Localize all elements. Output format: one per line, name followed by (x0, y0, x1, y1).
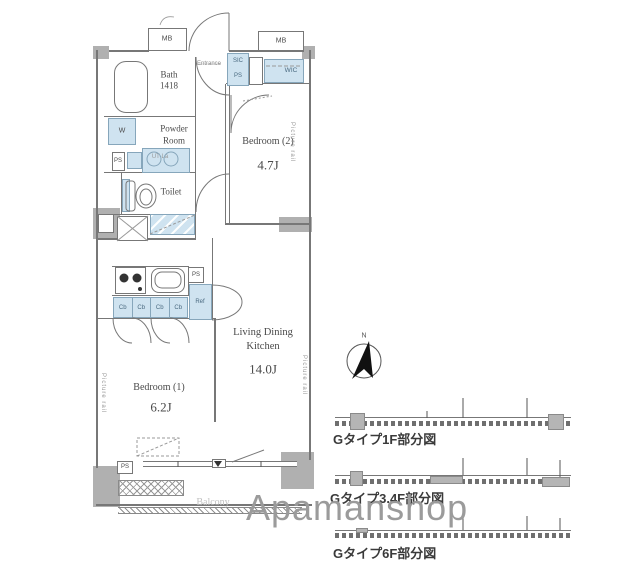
caption-type-1f: Gタイプ1F部分図 (333, 429, 436, 448)
shaft-box (98, 214, 114, 233)
strip-1f-band (335, 421, 571, 426)
north-compass-icon (347, 341, 381, 379)
wall-line (309, 50, 311, 460)
washer-label: W (119, 128, 126, 135)
bedroom1-area-label: 6.2J (150, 401, 171, 414)
strip-34f-block-mid (430, 476, 463, 484)
north-label: N (361, 333, 366, 340)
picture-rail-label: Picture rail (100, 373, 106, 413)
wic-label: WIC (285, 68, 298, 75)
wall-block (93, 466, 120, 507)
wall-line (225, 223, 310, 225)
closet-cell: Cb (151, 298, 170, 317)
closet-cell: Cb (133, 298, 152, 317)
toilet-bowl (136, 184, 156, 208)
powder-room-label: Powder (160, 125, 188, 134)
strip-1f-line (335, 417, 571, 418)
ldk-label2: Kitchen (246, 342, 279, 353)
strip-34f-block-right (542, 477, 570, 487)
strip-34f-block-left (350, 471, 363, 486)
wall-line (212, 238, 213, 266)
hall-storage (150, 214, 195, 235)
future-area-dashed-box (137, 438, 179, 456)
wall-line (104, 116, 195, 117)
window-bedroom1 (143, 461, 212, 467)
wall-line (112, 295, 189, 296)
strip-6f-line (335, 530, 571, 531)
bath-label: Bath (161, 71, 178, 80)
ps-label-sic: PS (234, 73, 242, 79)
meter-box-label: MB (162, 36, 173, 43)
caption-type-6f: Gタイプ6F部分図 (333, 543, 436, 562)
ldk-area-label: 14.0J (249, 363, 277, 376)
watermark: Apamanshop (246, 487, 468, 529)
balcony-hatch-area (118, 480, 184, 496)
bedroom2-label: Bedroom (2) (242, 137, 293, 147)
powder-room-label2: Room (163, 137, 185, 146)
ldk-label: Living Dining (233, 328, 293, 339)
closet-cell: Cb (170, 298, 188, 317)
wall-line (195, 57, 196, 238)
strip-1f-block-left (350, 413, 365, 430)
balcony-label: Balcony (196, 498, 229, 508)
picture-rail-label: Picture rail (301, 355, 307, 395)
wall-line (212, 266, 213, 320)
powder-note-label: UT-La (152, 154, 168, 160)
void-shaft (117, 216, 148, 241)
wall-line (109, 50, 149, 52)
strip-1f-block-right (548, 414, 564, 430)
sic-label: SIC (233, 58, 243, 64)
wall-line (214, 318, 216, 422)
kitchen-sink (151, 268, 185, 293)
bedroom2-area-label: 4.7J (257, 159, 278, 172)
wall-line (96, 50, 98, 468)
wall-line (225, 84, 226, 224)
closet-cell: Cb (114, 298, 133, 317)
ps-shaft-entrance (249, 57, 263, 85)
window-ldk (225, 461, 297, 467)
linen-box (127, 152, 142, 169)
toilet-side-cabinet (122, 179, 130, 212)
toilet-label: Toilet (161, 188, 182, 197)
wall-stub (212, 459, 226, 468)
bath-size-label: 1418 (160, 82, 178, 91)
bathtub (114, 61, 148, 113)
entrance-door-arc (189, 13, 229, 51)
entrance-label: Entrance (197, 61, 221, 67)
meter-box-label: MB (276, 38, 287, 45)
ps-label-bottom: PS (121, 464, 129, 470)
picture-rail-label: Picture rail (289, 122, 295, 162)
strip-6f-band (335, 533, 571, 538)
vanity-counter (142, 148, 190, 173)
ref-label: Ref (195, 299, 204, 305)
ps-label-powder: PS (114, 158, 122, 164)
ps-label-kitchen: PS (192, 272, 200, 278)
closet-row: Cb Cb Cb Cb (113, 297, 188, 318)
stove (115, 267, 146, 294)
floorplan-canvas: Cb Cb Cb Cb MB MB Bath 1418 W PS Powder … (0, 0, 640, 569)
bedroom1-label: Bedroom (1) (133, 383, 184, 393)
